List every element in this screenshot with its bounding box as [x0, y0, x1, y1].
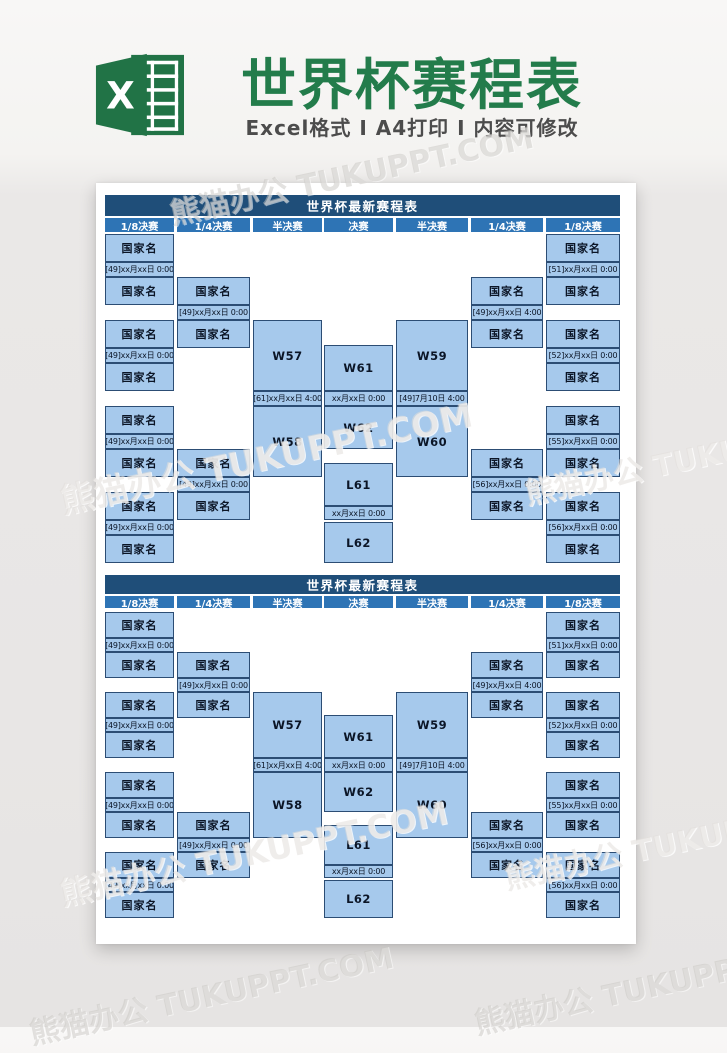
match-date-cell: [49]xx月xx日 0:00: [105, 262, 174, 277]
country-cell: 国家名: [105, 732, 174, 758]
match-date-cell: [61]xx月xx日 4:00: [253, 391, 322, 406]
match-date-cell: [49]xx月xx日 0:00: [105, 348, 174, 363]
country-cell: 国家名: [105, 852, 174, 878]
country-cell: 国家名: [177, 449, 250, 477]
watermark-text: 熊猫办公 TUKUPPT.COM: [25, 933, 397, 1053]
country-cell: 国家名: [546, 692, 620, 718]
country-cell: 国家名: [471, 449, 543, 477]
column-header: 1/4决赛: [471, 218, 543, 232]
column-header: 1/8决赛: [105, 218, 174, 232]
match-date-cell: [49]xx月xx日 0:00: [177, 477, 250, 492]
banner-subtitle: Excel格式 Ⅰ A4打印 Ⅰ 内容可修改: [192, 112, 632, 141]
country-cell: 国家名: [546, 277, 620, 305]
match-cell: W58: [253, 772, 322, 838]
country-cell: 国家名: [546, 772, 620, 798]
country-cell: 国家名: [177, 812, 250, 838]
match-date-cell: [49]xx月xx日 0:00: [105, 520, 174, 535]
match-date-cell: [55]xx月xx日 0:00: [546, 434, 620, 449]
country-cell: 国家名: [105, 652, 174, 678]
country-cell: 国家名: [471, 652, 543, 678]
country-cell: 国家名: [105, 449, 174, 477]
match-date-cell: [56]xx月xx日 0:00: [471, 477, 543, 492]
column-header: 1/8决赛: [546, 218, 620, 232]
country-cell: 国家名: [546, 612, 620, 638]
country-cell: 国家名: [105, 692, 174, 718]
column-header: 1/4决赛: [177, 218, 250, 232]
match-date-cell: [49]xx月xx日 0:00: [177, 838, 250, 852]
country-cell: 国家名: [546, 363, 620, 391]
country-cell: 国家名: [546, 732, 620, 758]
match-cell: W57: [253, 320, 322, 391]
template-preview-screenshot: { "banner": { "logo_letter": "X", "title…: [0, 0, 727, 1027]
country-cell: 国家名: [546, 852, 620, 878]
column-header: 1/8决赛: [546, 596, 620, 608]
match-date-cell: [55]xx月xx日 0:00: [546, 798, 620, 812]
match-date-cell: [51]xx月xx日 0:00: [546, 638, 620, 652]
country-cell: 国家名: [546, 406, 620, 434]
country-cell: 国家名: [471, 852, 543, 878]
country-cell: 国家名: [105, 612, 174, 638]
match-date-cell: [49]7月10日 4:00: [396, 758, 468, 772]
match-cell: L62: [324, 522, 393, 563]
column-header: 1/4决赛: [471, 596, 543, 608]
country-cell: 国家名: [546, 535, 620, 563]
country-cell: 国家名: [177, 692, 250, 718]
column-header: 决赛: [324, 596, 393, 608]
country-cell: 国家名: [471, 320, 543, 348]
country-cell: 国家名: [177, 277, 250, 305]
schedule-bracket-table-1: 世界杯最新赛程表1/8决赛1/4决赛半决赛决赛半决赛1/4决赛1/8决赛国家名[…: [105, 195, 620, 563]
country-cell: 国家名: [105, 892, 174, 918]
country-cell: 国家名: [546, 492, 620, 520]
match-date-cell: [49]xx月xx日 0:00: [105, 638, 174, 652]
country-cell: 国家名: [105, 234, 174, 262]
match-cell: W62: [324, 772, 393, 812]
country-cell: 国家名: [546, 234, 620, 262]
country-cell: 国家名: [105, 812, 174, 838]
country-cell: 国家名: [546, 892, 620, 918]
match-date-cell: xx月xx日 0:00: [324, 865, 393, 878]
match-cell: W62: [324, 406, 393, 449]
country-cell: 国家名: [105, 363, 174, 391]
match-date-cell: [56]xx月xx日 0:00: [546, 520, 620, 535]
country-cell: 国家名: [471, 492, 543, 520]
country-cell: 国家名: [177, 492, 250, 520]
match-cell: L61: [324, 825, 393, 865]
country-cell: 国家名: [471, 277, 543, 305]
match-date-cell: [56]xx月xx日 0:00: [546, 878, 620, 892]
match-date-cell: [61]xx月xx日 4:00: [253, 758, 322, 772]
match-date-cell: [51]xx月xx日 0:00: [546, 262, 620, 277]
match-date-cell: [52]xx月xx日 0:00: [546, 348, 620, 363]
match-cell: W59: [396, 692, 468, 758]
column-header: 1/8决赛: [105, 596, 174, 608]
country-cell: 国家名: [177, 652, 250, 678]
match-cell: W59: [396, 320, 468, 391]
country-cell: 国家名: [546, 449, 620, 477]
country-cell: 国家名: [105, 406, 174, 434]
country-cell: 国家名: [471, 812, 543, 838]
country-cell: 国家名: [546, 320, 620, 348]
banner-title: 世界杯赛程表: [192, 40, 632, 120]
column-header: 半决赛: [253, 596, 322, 608]
match-date-cell: [49]xx月xx日 4:00: [471, 678, 543, 692]
match-cell: L62: [324, 880, 393, 918]
column-header: 半决赛: [396, 596, 468, 608]
country-cell: 国家名: [546, 652, 620, 678]
excel-logo-icon: X: [90, 50, 188, 140]
match-cell: W61: [324, 345, 393, 391]
country-cell: 国家名: [177, 320, 250, 348]
column-header: 1/4决赛: [177, 596, 250, 608]
banner-header: X 世界杯赛程表 Excel格式 Ⅰ A4打印 Ⅰ 内容可修改: [0, 0, 727, 183]
match-date-cell: [56]xx月xx日 0:00: [471, 838, 543, 852]
country-cell: 国家名: [105, 772, 174, 798]
match-date-cell: [49]xx月xx日 0:00: [105, 434, 174, 449]
match-cell: W60: [396, 406, 468, 477]
match-date-cell: [52]xx月xx日 0:00: [546, 718, 620, 732]
country-cell: 国家名: [471, 692, 543, 718]
match-date-cell: xx月xx日 0:00: [324, 758, 393, 772]
match-date-cell: [49]xx月xx日 0:00: [105, 878, 174, 892]
country-cell: 国家名: [105, 320, 174, 348]
country-cell: 国家名: [105, 492, 174, 520]
schedule-bracket-table-2: 世界杯最新赛程表1/8决赛1/4决赛半决赛决赛半决赛1/4决赛1/8决赛国家名[…: [105, 575, 620, 918]
country-cell: 国家名: [105, 535, 174, 563]
document-page: 世界杯最新赛程表1/8决赛1/4决赛半决赛决赛半决赛1/4决赛1/8决赛国家名[…: [96, 183, 636, 944]
country-cell: 国家名: [546, 812, 620, 838]
match-cell: L61: [324, 463, 393, 506]
match-date-cell: xx月xx日 0:00: [324, 506, 393, 520]
column-header: 半决赛: [253, 218, 322, 232]
match-cell: W60: [396, 772, 468, 838]
svg-text:X: X: [106, 74, 135, 118]
column-header: 决赛: [324, 218, 393, 232]
match-date-cell: [49]xx月xx日 0:00: [105, 718, 174, 732]
match-cell: W61: [324, 715, 393, 758]
match-date-cell: [49]xx月xx日 0:00: [177, 678, 250, 692]
match-cell: W57: [253, 692, 322, 758]
match-date-cell: [49]xx月xx日 4:00: [471, 305, 543, 320]
match-date-cell: [49]7月10日 4:00: [396, 391, 468, 406]
country-cell: 国家名: [177, 852, 250, 878]
table-title: 世界杯最新赛程表: [105, 195, 620, 216]
match-date-cell: xx月xx日 0:00: [324, 391, 393, 406]
country-cell: 国家名: [105, 277, 174, 305]
match-date-cell: [49]xx月xx日 0:00: [105, 798, 174, 812]
table-title: 世界杯最新赛程表: [105, 575, 620, 594]
match-date-cell: [49]xx月xx日 0:00: [177, 305, 250, 320]
match-cell: W58: [253, 406, 322, 477]
column-header: 半决赛: [396, 218, 468, 232]
